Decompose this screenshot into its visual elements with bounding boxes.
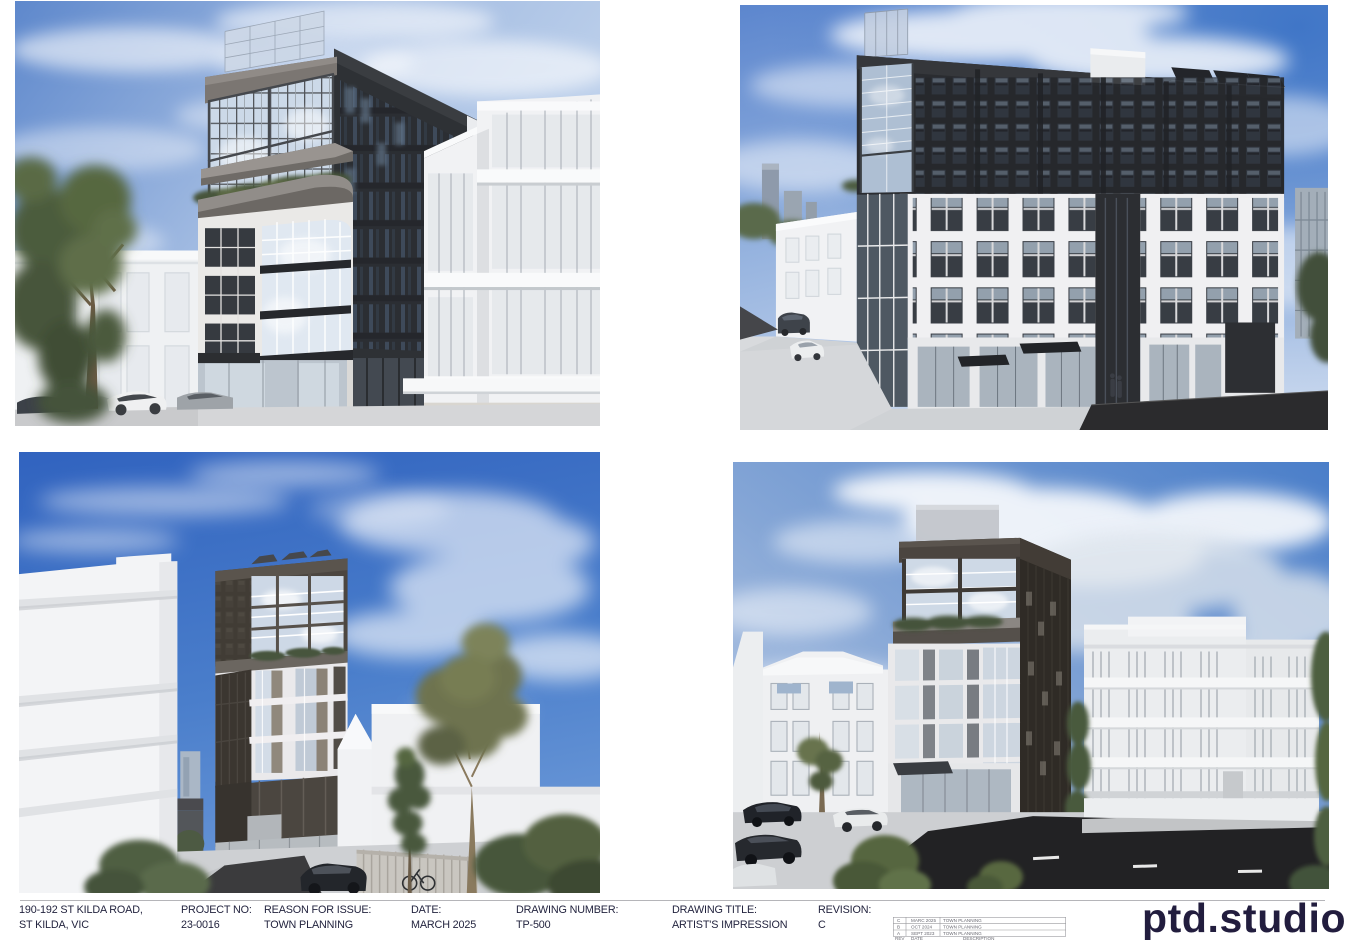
svg-text:REV: REV (895, 936, 905, 940)
svg-text:C: C (897, 918, 901, 923)
svg-text:B: B (897, 924, 900, 929)
svg-text:DESCRIPTION: DESCRIPTION (963, 936, 994, 940)
svg-text:OCT 2024: OCT 2024 (911, 924, 933, 929)
svg-text:MARC 2025: MARC 2025 (911, 918, 936, 923)
svg-text:TOWN PLANNING: TOWN PLANNING (943, 918, 982, 923)
svg-text:TOWN PLANNING: TOWN PLANNING (943, 924, 982, 929)
svg-text:DATE: DATE (911, 936, 923, 940)
